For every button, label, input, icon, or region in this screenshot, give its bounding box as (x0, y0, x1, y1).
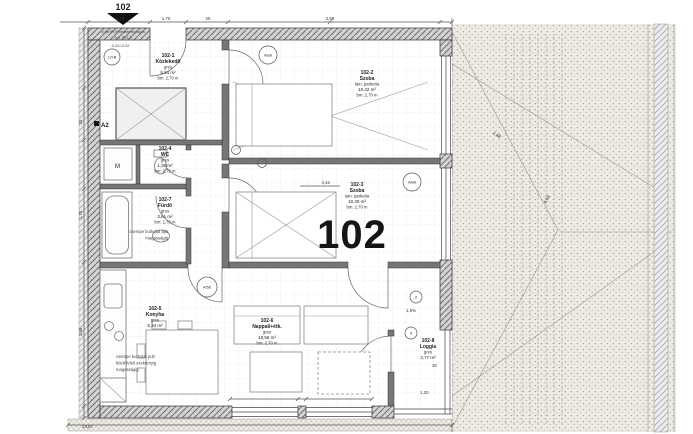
dim-30: 30 (432, 363, 437, 368)
room-floor: gres (263, 330, 271, 335)
dim-top-1: 1,38 (116, 16, 125, 21)
floor-plan-sheet: LO:B A/a9 A/a9 A/5b 2 9 A2 M 102 3 db PT… (0, 0, 693, 434)
room-height: bm: 2,70 m (347, 205, 368, 210)
room-height: bm: 2,70 m (357, 93, 378, 98)
bath-tile-note-2: magasságig (145, 236, 168, 241)
marker-aa9-top: A/a9 (264, 54, 272, 58)
room-area: 3,61 m² (157, 214, 173, 219)
floor-plan-drawing: LO:B A/a9 A/a9 A/5b 2 9 A2 M 102 3 db PT… (0, 0, 693, 434)
level-mark: -0,02/-0,02 (111, 43, 130, 48)
room-area: 18,58 m² (258, 335, 276, 340)
marker-a5b: A/5b (203, 286, 211, 290)
marker-9: 9 (410, 332, 412, 336)
marker-lob: LO:B (108, 56, 117, 60)
kitchen-tile-note-2: felett felső szekrényig (116, 361, 157, 366)
dim-top-2: 1,70 (162, 16, 171, 21)
room-floor: gres (424, 350, 432, 355)
room-area: 5,94 m² (160, 70, 176, 75)
room-height: bm: 2,70 m (155, 169, 176, 174)
dim-left-2: 1,70 (78, 210, 83, 219)
bath-tile-note-1: csempe burkolat ajtó (129, 229, 168, 234)
big-unit-label: 102 (317, 213, 387, 257)
room-area: 10,30 m² (348, 199, 366, 204)
room-floor: gres (161, 209, 169, 214)
room-floor: lam. parketta (355, 82, 380, 87)
dim-top-3: 25 (206, 16, 211, 21)
entry-note-1: 3 db PT/PVhvlemezrag a (101, 29, 145, 34)
slope-label: 1,5% (406, 308, 416, 313)
room-area: 10,42 m² (358, 87, 376, 92)
dim-left-3: 3,98 (78, 327, 83, 336)
dim-left-1: 25 (78, 119, 83, 124)
insulation-strip (79, 28, 88, 418)
entry-note-2: a.a. 201,3 (114, 35, 131, 40)
kitchen-tile-note-3: magasságig (116, 367, 139, 372)
room-area: 1,38 m² (157, 163, 173, 168)
room-floor: gres (151, 318, 159, 323)
room-height: bm: 2,70 m (158, 76, 179, 81)
dim-120: 1,20 (420, 390, 429, 395)
room-floor: gres (161, 158, 169, 163)
bathtub (102, 192, 132, 258)
kitchen-tile-note-1: csempe burkolat pult (116, 354, 155, 359)
dim-top-4: 2,98 (326, 16, 335, 21)
washer-label: M (115, 164, 120, 170)
dim-1487: 14,87 (82, 424, 94, 429)
marker-a2: A2 (101, 123, 109, 129)
room-height: bm: 2,70 m (155, 220, 176, 225)
marker-aa9-right: A/a9 (408, 181, 416, 185)
room-floor: gres (164, 65, 172, 70)
room-area: 3,77 m² (420, 355, 436, 360)
room-area: 5,34 m² (147, 323, 163, 328)
unit-number: 102 (115, 2, 130, 12)
room-label-loggia: 102-8 Loggia gres 3,77 m² (420, 338, 437, 360)
shaft (116, 88, 186, 140)
marker-2: 2 (415, 296, 417, 300)
room-floor: lam. parketta (345, 194, 370, 199)
site-terrain (452, 24, 676, 432)
kitchen-counter (100, 270, 126, 402)
dim-442: 4,42 (321, 180, 330, 185)
room-height: bm: 2,70 m (257, 341, 278, 346)
